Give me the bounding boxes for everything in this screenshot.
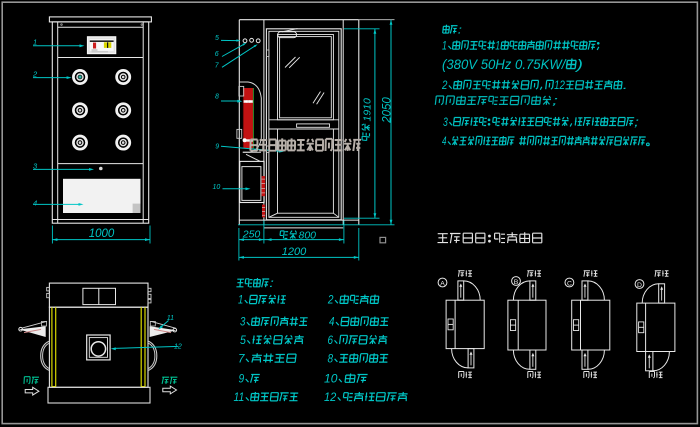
- svg-text:1: 1: [442, 40, 447, 53]
- svg-text:8: 8: [215, 93, 219, 100]
- svg-text:;: ;: [634, 116, 639, 129]
- svg-text:12: 12: [554, 79, 565, 92]
- svg-text:1910: 1910: [361, 98, 373, 122]
- svg-text:2050: 2050: [382, 97, 394, 124]
- svg-text:9: 9: [239, 373, 245, 386]
- svg-text:4: 4: [33, 199, 37, 208]
- svg-text:A: A: [440, 281, 445, 288]
- svg-text:4: 4: [442, 135, 447, 148]
- svg-text:6: 6: [328, 334, 334, 347]
- svg-text:.: .: [623, 79, 628, 92]
- svg-text:3: 3: [443, 116, 448, 129]
- svg-text:5: 5: [240, 334, 246, 347]
- svg-text:1: 1: [238, 294, 243, 307]
- svg-text::: :: [269, 277, 274, 290]
- svg-text:12: 12: [324, 391, 337, 404]
- svg-text:2: 2: [327, 294, 334, 307]
- svg-text:11: 11: [234, 391, 245, 404]
- svg-text:7: 7: [215, 63, 220, 70]
- svg-text:C: C: [567, 281, 572, 288]
- svg-text::: :: [458, 24, 462, 36]
- svg-text:1000: 1000: [89, 228, 115, 240]
- svg-text:1: 1: [33, 38, 37, 47]
- svg-text:9: 9: [215, 144, 219, 151]
- svg-text:;: ;: [552, 95, 558, 108]
- svg-text:7: 7: [238, 352, 245, 365]
- svg-text:4: 4: [329, 316, 335, 329]
- svg-text:10: 10: [213, 184, 221, 191]
- svg-text:250: 250: [242, 228, 261, 240]
- svg-text:2: 2: [441, 79, 448, 92]
- svg-text:2: 2: [32, 69, 38, 78]
- svg-text:8: 8: [328, 352, 334, 365]
- svg-text:800: 800: [299, 229, 317, 241]
- svg-text:10: 10: [324, 373, 338, 386]
- svg-text:3: 3: [240, 316, 246, 329]
- svg-text:1200: 1200: [282, 246, 307, 258]
- svg-text:6: 6: [215, 51, 219, 58]
- svg-text:D: D: [637, 282, 642, 289]
- svg-text:12: 12: [174, 344, 182, 351]
- svg-text:5: 5: [215, 35, 219, 42]
- svg-text:(380V 50Hz 0.75KW/: (380V 50Hz 0.75KW/: [442, 57, 567, 72]
- svg-text:B: B: [514, 279, 519, 286]
- svg-text:1: 1: [495, 40, 500, 53]
